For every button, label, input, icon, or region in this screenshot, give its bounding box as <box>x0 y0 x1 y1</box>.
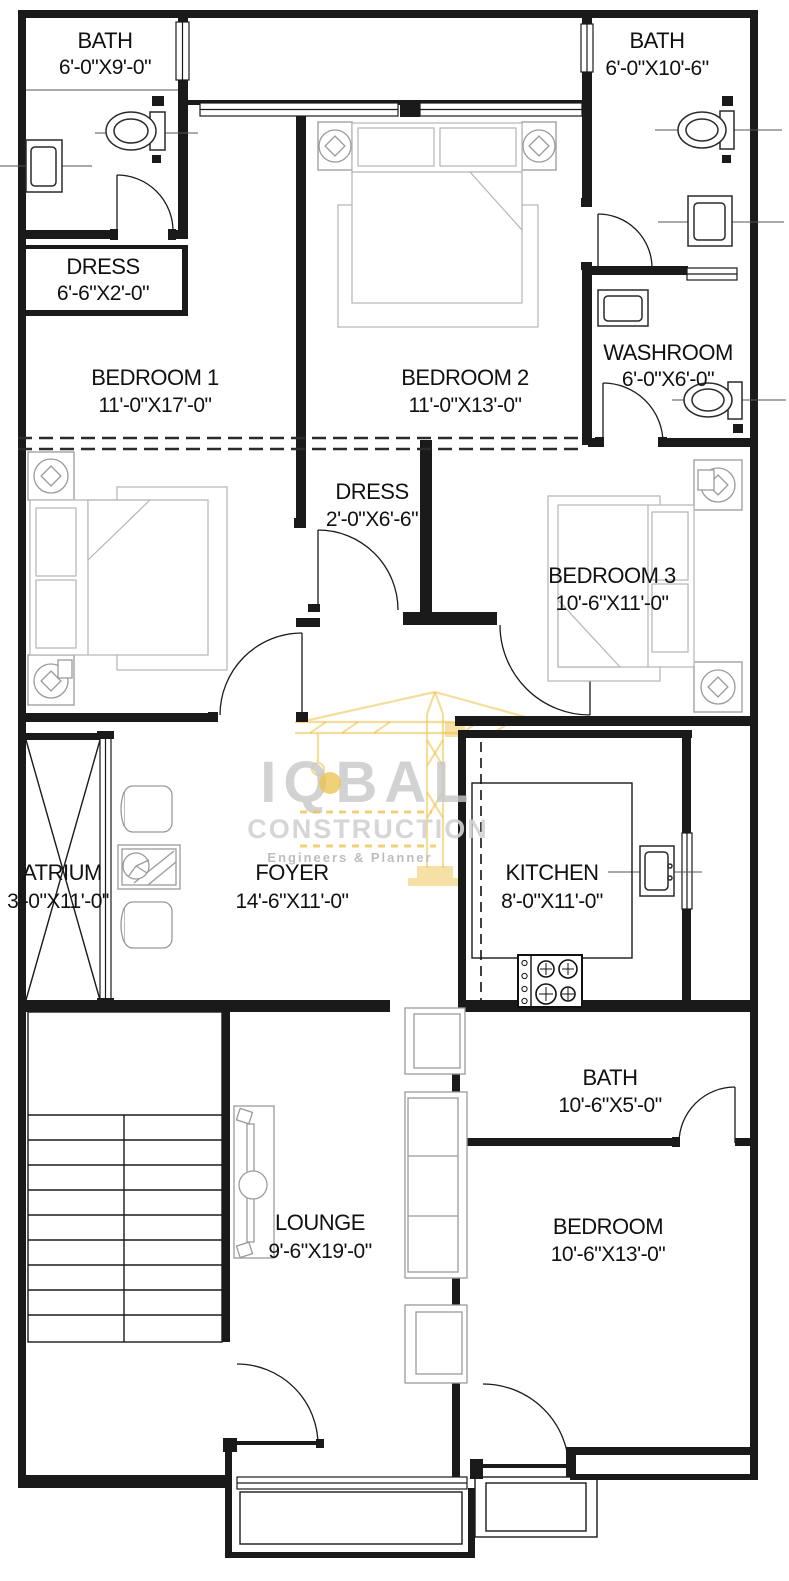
sofa-icon <box>405 1092 467 1278</box>
room-label-bedroom2: BEDROOM 2 11'-0"X13'-0" <box>401 365 529 417</box>
toilet-icon <box>678 96 734 163</box>
room-label-bath-top-left: BATH 6'-0"X9'-0" <box>59 28 151 79</box>
nightstand-icon <box>694 662 742 712</box>
svg-text:8'-0"X11'-0": 8'-0"X11'-0" <box>501 890 603 913</box>
toilet-icon <box>106 96 165 163</box>
sofa-icon <box>405 1305 467 1383</box>
room-label-bedroom1: BEDROOM 1 11'-0"X17'-0" <box>91 365 219 417</box>
nightstand-icon <box>694 460 742 510</box>
door-lounge-porch <box>223 1364 324 1452</box>
svg-text:WASHROOM: WASHROOM <box>603 340 733 365</box>
door-bath-top-left <box>110 175 176 240</box>
sink-icon <box>598 290 648 326</box>
stove-icon <box>518 955 582 1007</box>
room-label-dress-top: DRESS 6'-6"X2'-0" <box>57 254 149 305</box>
svg-text:DRESS: DRESS <box>335 479 408 504</box>
room-label-dress-mid: DRESS 2'-0"X6'-6" <box>326 479 418 531</box>
svg-text:6'-0"X10'-6": 6'-0"X10'-6" <box>605 57 708 80</box>
svg-text:2'-0"X6'-6": 2'-0"X6'-6" <box>326 508 418 531</box>
nightstand-icon <box>28 452 74 500</box>
window-icon <box>237 1477 467 1489</box>
bedroom2-furniture <box>318 122 556 327</box>
staircase <box>28 1012 222 1342</box>
svg-text:6'-6"X2'-0": 6'-6"X2'-0" <box>57 282 149 305</box>
sink-icon <box>688 196 732 246</box>
nightstand-icon <box>318 122 352 170</box>
room-label-bath-top-right: BATH 6'-0"X10'-6" <box>605 28 708 80</box>
nightstand-icon <box>28 655 74 705</box>
svg-text:BEDROOM 3: BEDROOM 3 <box>548 563 676 588</box>
room-label-bedroom-bottom: BEDROOM 10'-6"X13'-0" <box>551 1214 666 1266</box>
bedroom1-furniture <box>28 452 227 705</box>
door-bath-top-right <box>581 198 652 270</box>
bed-icon <box>30 500 208 655</box>
svg-text:6'-0"X9'-0": 6'-0"X9'-0" <box>59 56 151 79</box>
lightbulb-icon <box>319 772 341 794</box>
svg-text:10'-6"X13'-0": 10'-6"X13'-0" <box>551 1243 666 1266</box>
svg-text:BATH: BATH <box>629 28 684 53</box>
svg-text:14'-6"X11'-0": 14'-6"X11'-0" <box>236 890 349 913</box>
floor-plan-drawing: IQBAL CONSTRUCTION Engineers & Planner B… <box>0 0 789 1581</box>
watermark: IQBAL CONSTRUCTION Engineers & Planner <box>247 750 489 865</box>
svg-text:BEDROOM 2: BEDROOM 2 <box>401 365 529 390</box>
svg-text:ATRIUM: ATRIUM <box>22 860 102 885</box>
svg-text:10'-6"X5'-0": 10'-6"X5'-0" <box>558 1094 661 1117</box>
window-icon <box>176 22 189 80</box>
svg-text:10'-6"X11'-0": 10'-6"X11'-0" <box>556 592 669 615</box>
sink-icon <box>26 140 62 192</box>
window-icon <box>682 833 692 909</box>
svg-text:LOUNGE: LOUNGE <box>275 1210 365 1235</box>
room-label-washroom: WASHROOM 6'-0"X6'-0" <box>603 340 733 391</box>
window-icon <box>420 103 582 116</box>
svg-text:DRESS: DRESS <box>66 254 139 279</box>
svg-text:KITCHEN: KITCHEN <box>505 860 598 885</box>
watermark-subtitle: CONSTRUCTION <box>247 814 489 844</box>
svg-text:BATH: BATH <box>77 28 132 53</box>
foyer-furniture <box>118 786 180 948</box>
window-icon <box>200 103 398 116</box>
svg-text:BEDROOM 1: BEDROOM 1 <box>91 365 219 390</box>
svg-text:BEDROOM: BEDROOM <box>553 1214 663 1239</box>
chair-icon <box>121 902 172 948</box>
room-label-lounge: LOUNGE 9'-6"X19'-0" <box>268 1210 371 1263</box>
tv-console-icon <box>234 1106 274 1258</box>
svg-text:9'-6"X19'-0": 9'-6"X19'-0" <box>268 1240 371 1263</box>
porch <box>225 1443 597 1558</box>
nightstand-icon <box>522 122 556 170</box>
lounge-furniture <box>234 1008 467 1383</box>
sofa-icon <box>405 1008 465 1074</box>
bed-icon <box>352 123 522 303</box>
svg-text:3'-0"X11'-0": 3'-0"X11'-0" <box>7 890 109 913</box>
svg-text:FOYER: FOYER <box>255 860 328 885</box>
window-icon <box>687 268 737 280</box>
svg-text:11'-0"X13'-0": 11'-0"X13'-0" <box>409 394 522 417</box>
chair-icon <box>121 786 172 832</box>
room-label-foyer: FOYER 14'-6"X11'-0" <box>236 860 349 913</box>
floor-plan-canvas: IQBAL CONSTRUCTION Engineers & Planner B… <box>0 0 789 1581</box>
svg-text:BATH: BATH <box>582 1065 637 1090</box>
door-dress-mid <box>294 518 398 612</box>
kitchen-sink-icon <box>640 846 674 896</box>
window-icon <box>581 24 593 72</box>
door-washroom <box>595 383 667 447</box>
door-bedroom-porch <box>470 1384 569 1479</box>
watermark-title: IQBAL <box>260 750 475 815</box>
room-label-bath-mid: BATH 10'-6"X5'-0" <box>558 1065 661 1117</box>
svg-text:6'-0"X6'-0": 6'-0"X6'-0" <box>622 368 714 391</box>
table-icon <box>118 845 180 889</box>
room-label-kitchen: KITCHEN 8'-0"X11'-0" <box>501 860 603 913</box>
door-bath-mid <box>672 1087 735 1147</box>
svg-text:11'-0"X17'-0": 11'-0"X17'-0" <box>99 394 212 417</box>
